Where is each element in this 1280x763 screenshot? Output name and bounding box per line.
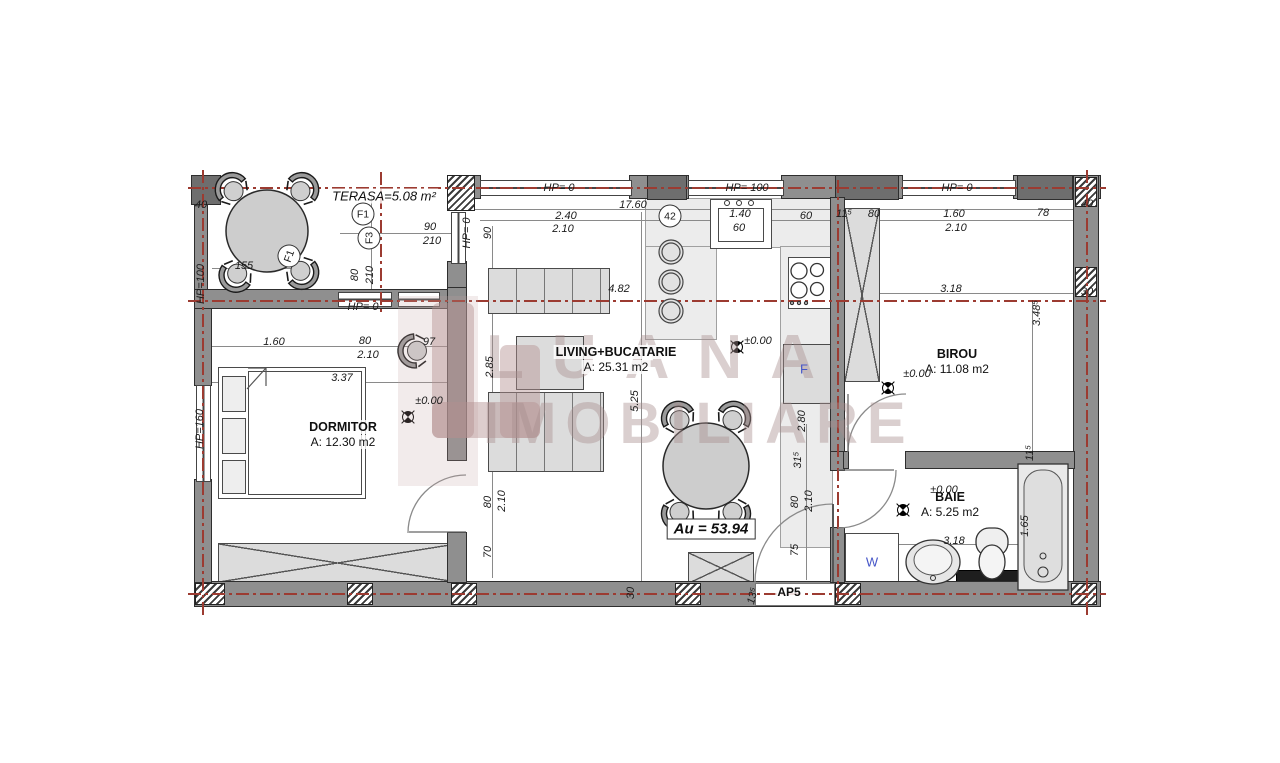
dim-label: 90 — [424, 221, 436, 233]
dim-line — [806, 424, 807, 580]
column-hatched — [448, 176, 474, 210]
watermark-logo — [500, 345, 540, 438]
floor-plan-canvas: LUANA IMOBILIARE TERASA=5.08 m² DORMITOR… — [0, 0, 1280, 763]
bed-pillow — [222, 418, 246, 454]
dim-line — [212, 268, 300, 269]
axis-line — [188, 593, 1106, 595]
dining-table-set — [655, 395, 756, 537]
dim-label: 2.10 — [496, 490, 508, 511]
dim-label: 5.25 — [629, 390, 641, 411]
floor-plan: LUANA IMOBILIARE TERASA=5.08 m² DORMITOR… — [0, 0, 1280, 763]
room-label-dormitor: DORMITOR — [307, 420, 379, 434]
dim-label: 4.82 — [608, 283, 629, 295]
dim-label: 80 — [349, 269, 361, 281]
sofa — [488, 268, 610, 314]
total-area-label: Au = 53.94 — [667, 519, 756, 540]
axis-line — [1086, 170, 1088, 616]
dim-label: 210 — [364, 266, 376, 284]
axis-line — [837, 180, 839, 604]
dim-label: 155 — [235, 260, 253, 272]
wall — [906, 452, 1074, 468]
apartment-label: AP5 — [775, 585, 802, 599]
room-area-dormitor: A: 12.30 m2 — [309, 435, 378, 449]
dim-line — [340, 233, 452, 234]
dim-label: ±0.00 — [744, 335, 771, 347]
kitchen-counter — [645, 246, 717, 340]
room-area-living: A: 25.31 m2 — [582, 360, 651, 374]
room-label-baie: BAIE — [933, 490, 967, 504]
dim-label: 2.85 — [484, 356, 496, 377]
dim-line — [846, 293, 1074, 294]
dim-label: 1.65 — [1019, 515, 1031, 536]
dim-line — [1032, 300, 1033, 538]
column — [192, 176, 220, 204]
room-area-baie: A: 5.25 m2 — [919, 505, 981, 519]
bathroom-sink — [906, 540, 960, 584]
room-label-living: LIVING+BUCATARIE — [554, 345, 679, 359]
room-label-birou: BIROU — [935, 347, 979, 361]
dim-label: 2.10 — [945, 222, 966, 234]
dim-label: F1 — [274, 241, 303, 270]
fridge-label: F — [800, 362, 808, 377]
dim-line — [480, 220, 1076, 221]
room-label-terasa: TERASA=5.08 m² — [330, 189, 438, 204]
bed-pillow — [222, 460, 246, 494]
wall — [448, 262, 466, 288]
kitchen-sink-basin — [718, 208, 764, 242]
dim-label: 2.10 — [552, 223, 573, 235]
dim-line — [641, 212, 642, 588]
shaft — [688, 552, 754, 584]
terrace-table-set — [208, 166, 325, 299]
washer-label: W — [866, 555, 878, 570]
terrace-door-window — [451, 212, 466, 264]
room-area-birou: A: 11.08 m2 — [923, 362, 991, 376]
dim-label: F3 — [358, 227, 381, 250]
dim-line — [371, 196, 372, 302]
dim-label: 3.18 — [943, 535, 964, 547]
axis-line — [188, 187, 1106, 189]
door-baie — [838, 470, 896, 528]
door-birou — [848, 394, 906, 452]
axis-line — [188, 300, 1106, 302]
dim-label: 210 — [423, 235, 441, 247]
wall — [448, 533, 466, 582]
dim-label: 2.10 — [357, 349, 378, 361]
bathtub — [1018, 464, 1068, 590]
axis-line — [202, 170, 204, 616]
bed-pillow — [222, 376, 246, 412]
wall — [844, 452, 848, 468]
wardrobe — [844, 208, 880, 382]
level-marker — [890, 497, 915, 522]
wardrobe — [218, 543, 457, 583]
level-marker — [724, 334, 749, 359]
